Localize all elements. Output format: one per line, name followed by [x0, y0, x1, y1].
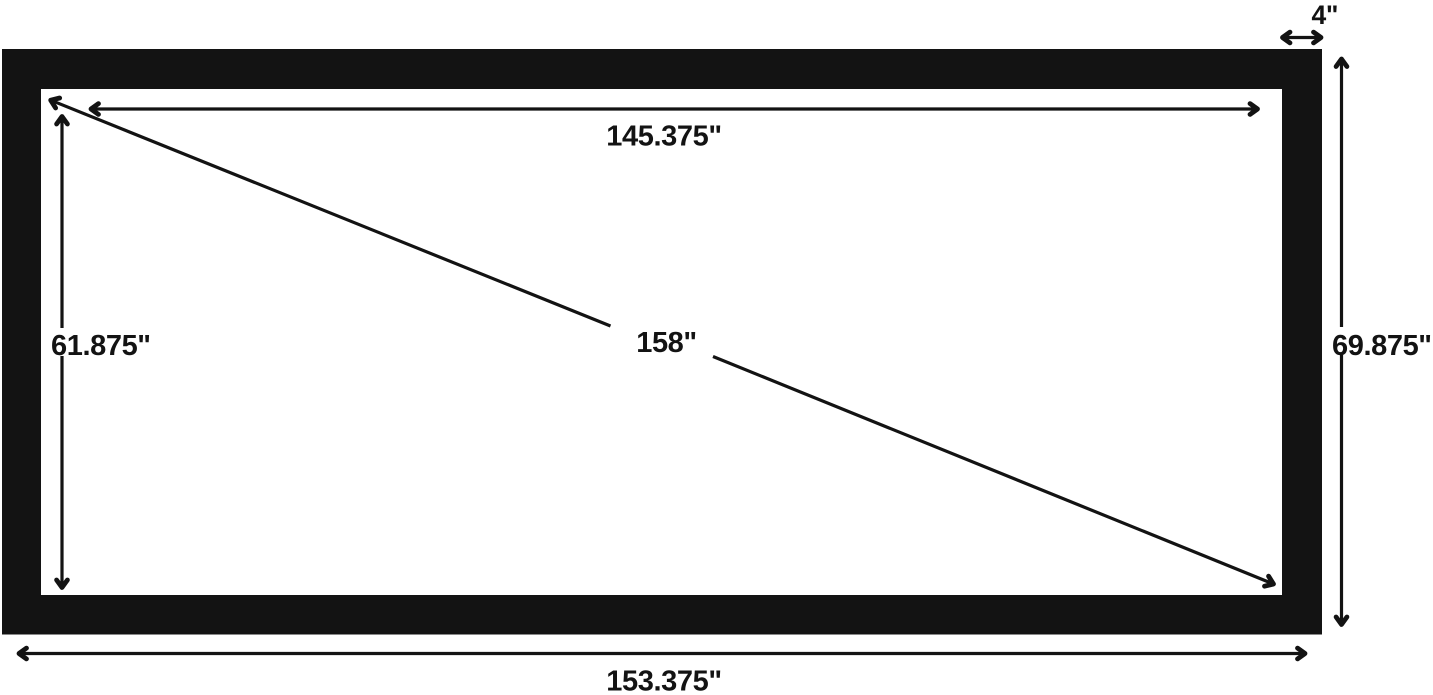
- svg-text:4": 4": [1312, 0, 1339, 30]
- svg-text:158": 158": [636, 327, 697, 359]
- svg-text:145.375": 145.375": [606, 121, 721, 153]
- svg-text:153.375": 153.375": [606, 666, 721, 695]
- svg-text:61.875": 61.875": [51, 330, 151, 362]
- svg-text:69.875": 69.875": [1332, 330, 1432, 362]
